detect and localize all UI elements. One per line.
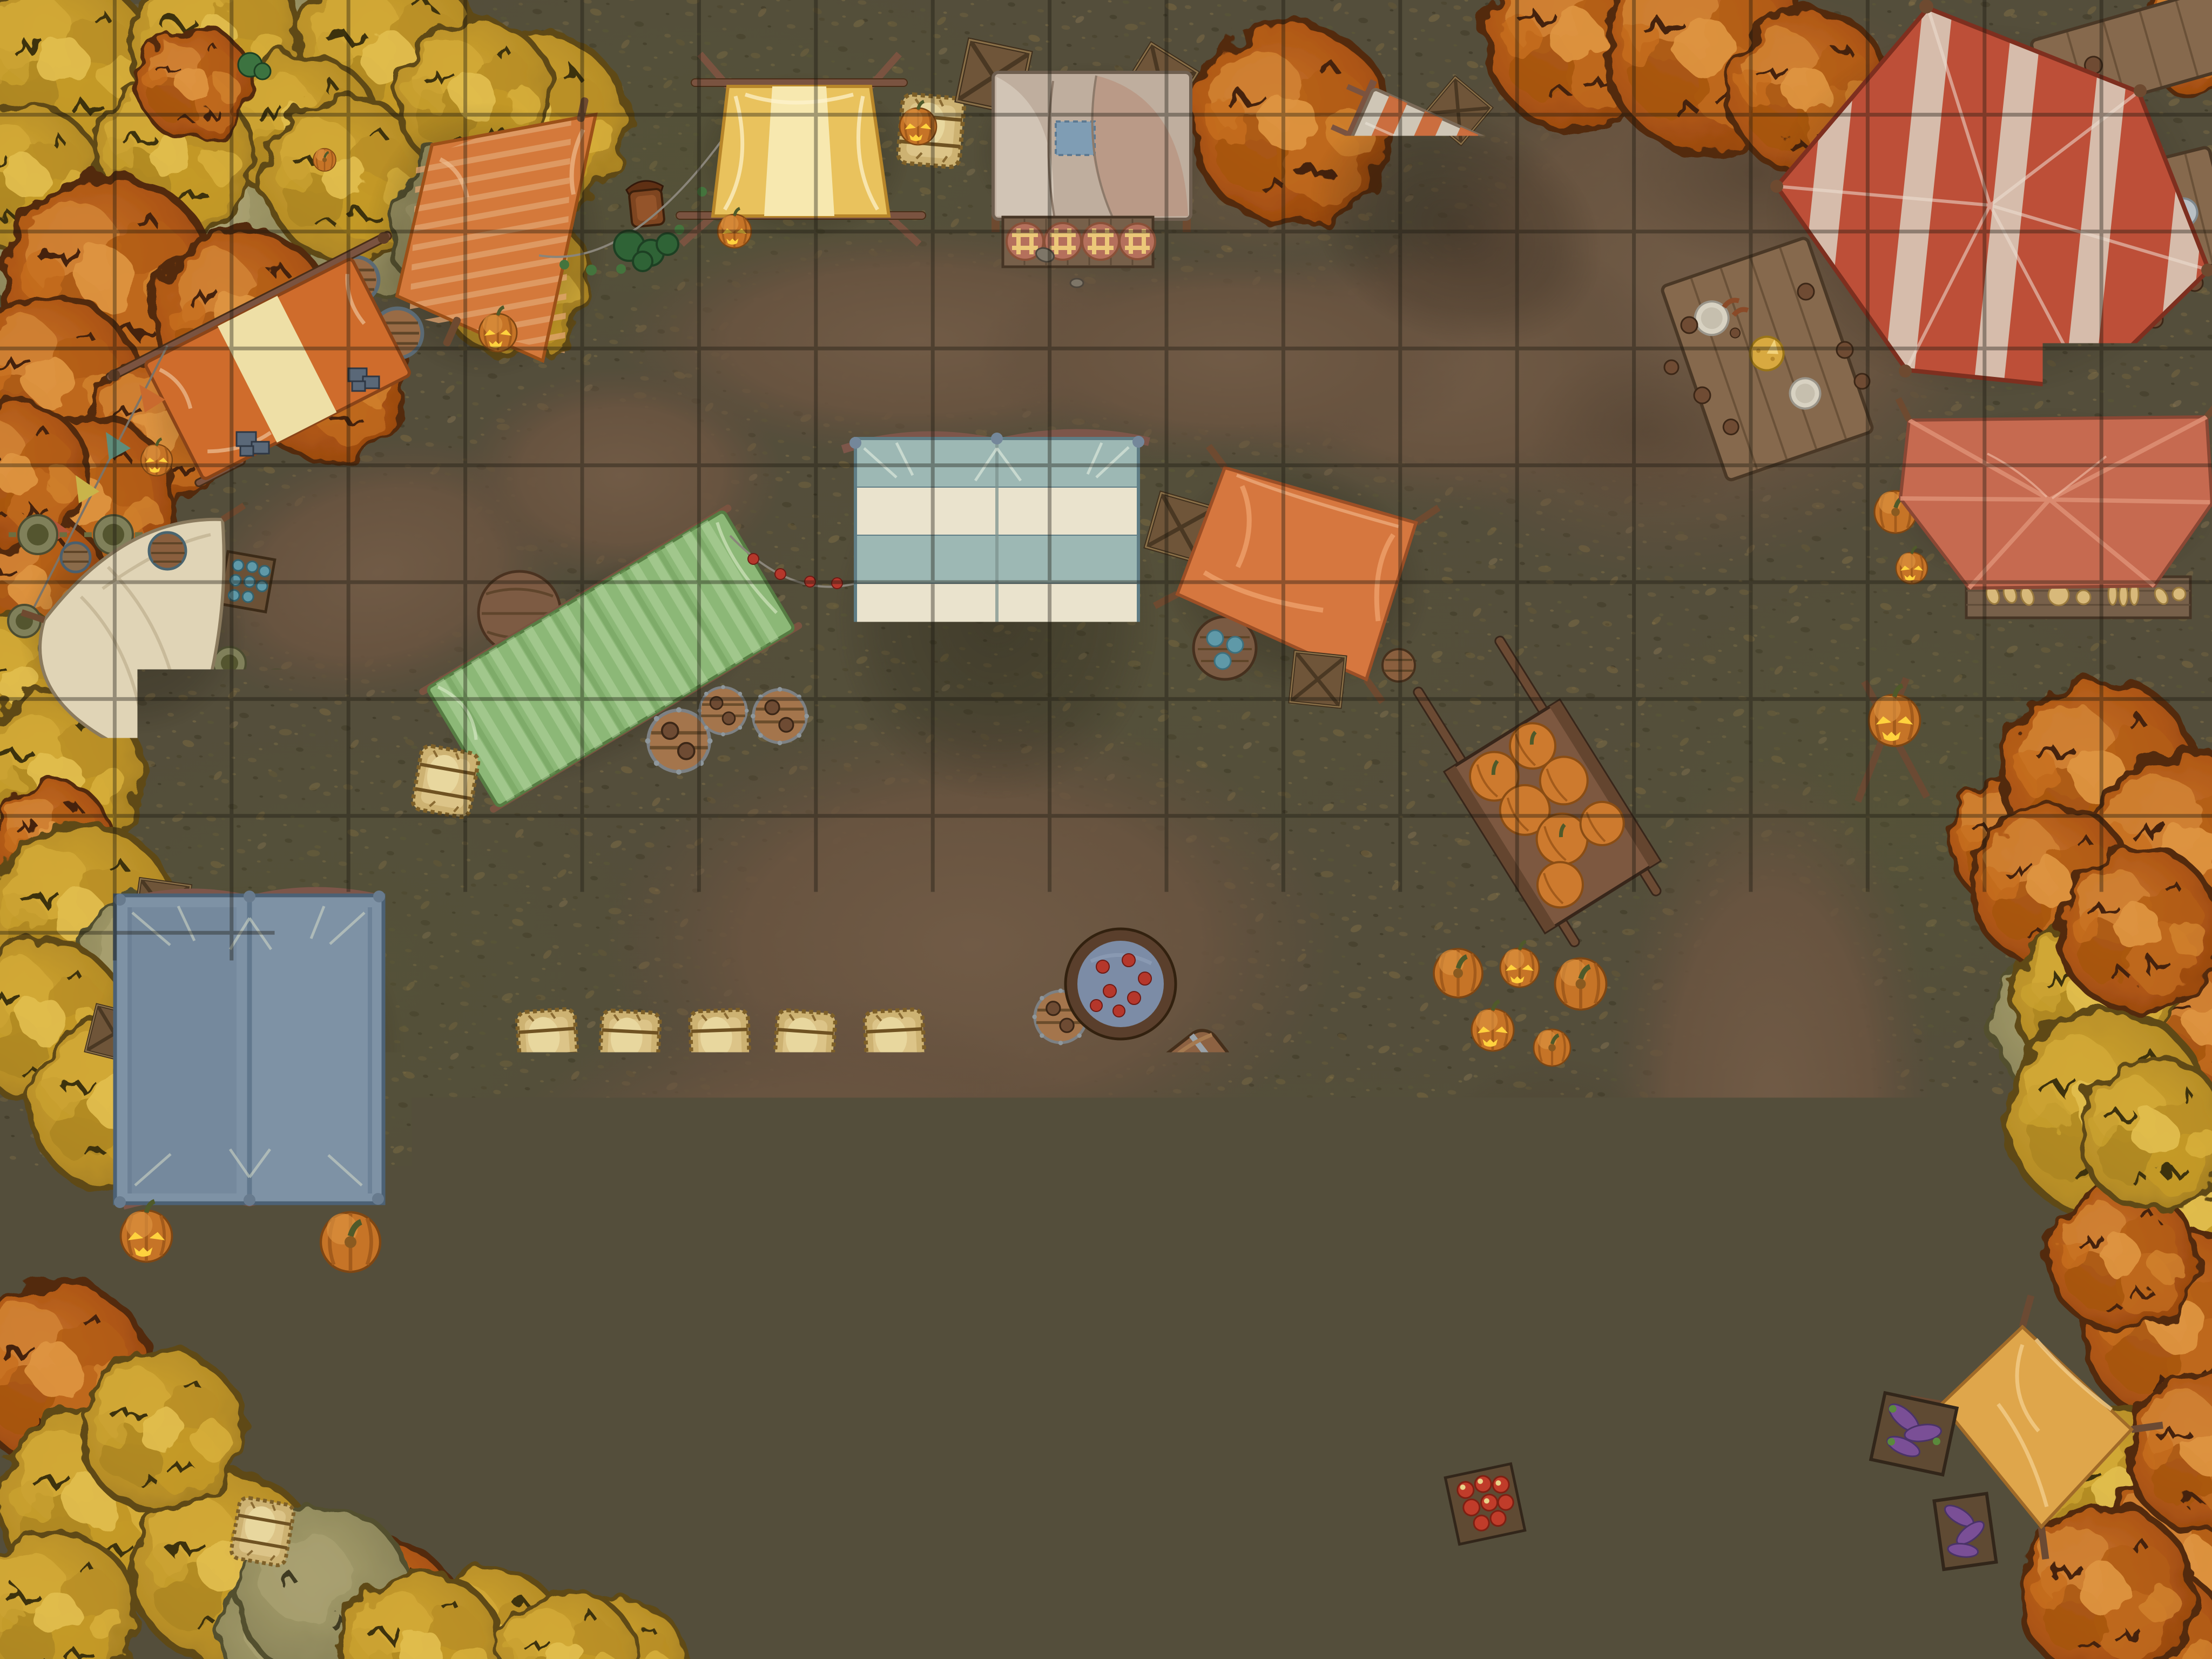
svg-text:Harvest Festival: Harvest Festival: [80, 1584, 309, 1622]
svg-text:AngelaMaps.com: AngelaMaps.com: [1772, 1626, 1972, 1654]
